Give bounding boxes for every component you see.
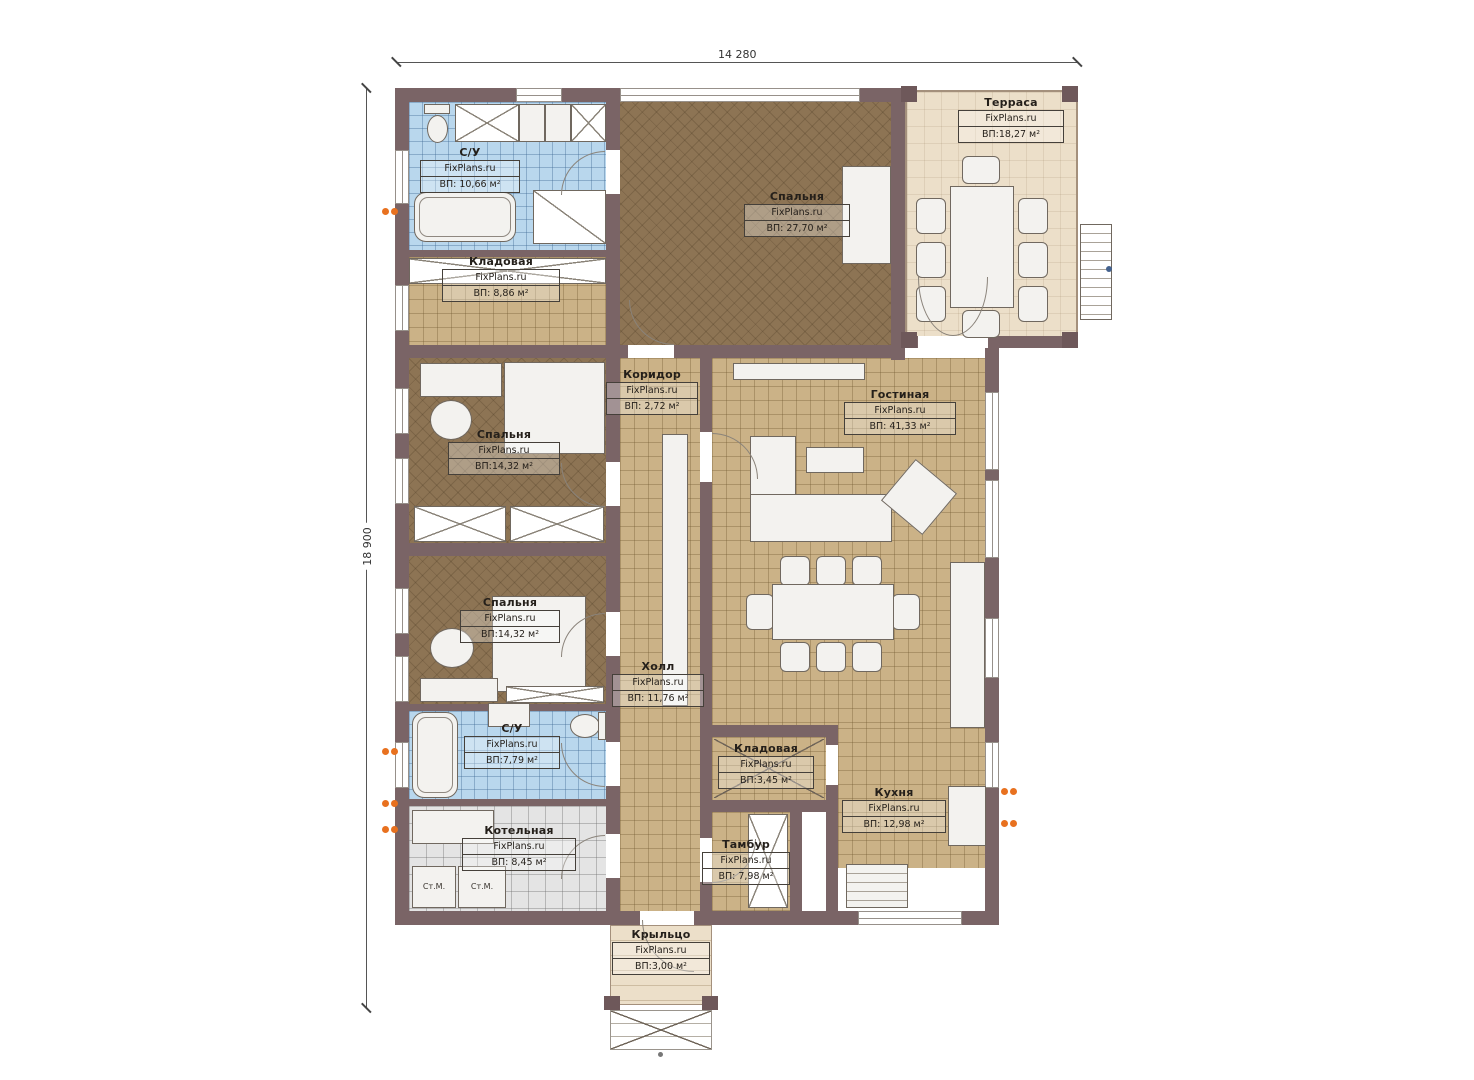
door-gap-bedroom-mid: [606, 462, 620, 506]
area-box: ВП: 10,66 м²: [420, 176, 520, 193]
radiator: [382, 748, 399, 756]
washing-machine: Ст.М.: [412, 866, 456, 908]
brand-box: FixPlans.ru: [442, 269, 560, 286]
window: [516, 88, 562, 102]
chair: [780, 556, 810, 586]
room-label-bedroom-low: Спальня FixPlans.ru ВП:14,32 м²: [460, 596, 560, 643]
dimension-line-top: [396, 62, 1078, 63]
window: [395, 588, 409, 634]
marker-dot: [658, 1052, 663, 1057]
toilet-tank: [424, 104, 450, 114]
window: [985, 392, 999, 470]
toilet-tank: [598, 712, 606, 740]
brand-box: FixPlans.ru: [844, 402, 956, 419]
chair: [746, 594, 774, 630]
brand-box: FixPlans.ru: [718, 756, 814, 773]
room-label-porch: Крыльцо FixPlans.ru ВП:3,00 м²: [612, 928, 710, 975]
area-box: ВП:14,32 м²: [460, 626, 560, 643]
chair: [1018, 286, 1048, 322]
chair: [962, 156, 1000, 184]
window: [620, 88, 860, 102]
terrace-post: [901, 86, 917, 102]
window: [985, 480, 999, 558]
room-label-tambur: Тамбур FixPlans.ru ВП: 7,98 м²: [702, 838, 790, 885]
brand-box: FixPlans.ru: [464, 736, 560, 753]
room-label-boiler: Котельная FixPlans.ru ВП: 8,45 м²: [462, 824, 576, 871]
window: [858, 911, 962, 925]
door-gap-bedroom-low: [606, 612, 620, 656]
shower: [533, 190, 606, 244]
brand-box: FixPlans.ru: [420, 160, 520, 177]
brand-box: FixPlans.ru: [448, 442, 560, 459]
area-box: ВП: 27,70 м²: [744, 220, 850, 237]
wardrobe: [455, 104, 519, 142]
chair: [892, 594, 920, 630]
room-name: Котельная: [462, 824, 576, 837]
room-label-living: Гостиная FixPlans.ru ВП: 41,33 м²: [844, 388, 956, 435]
chair: [1018, 198, 1048, 234]
area-box: ВП:3,45 м²: [718, 772, 814, 789]
terrace-post: [901, 332, 917, 348]
area-box: ВП: 41,33 м²: [844, 418, 956, 435]
terrace-post: [1062, 332, 1078, 348]
room-name: Спальня: [448, 428, 560, 441]
area-box: ВП:18,27 м²: [958, 126, 1064, 143]
room-name: Кладовая: [718, 742, 814, 755]
wall-center-vertical: [606, 102, 620, 911]
area-box: ВП: 7,98 м²: [702, 868, 790, 885]
area-box: ВП:7,79 м²: [464, 752, 560, 769]
desk: [420, 678, 498, 702]
cabinet: [545, 104, 571, 142]
room-label-bath-low: С/У FixPlans.ru ВП:7,79 м²: [464, 722, 560, 769]
room-name: Коридор: [606, 368, 698, 381]
porch-post: [702, 996, 718, 1010]
room-name: Крыльцо: [612, 928, 710, 941]
room-name: Терраса: [958, 96, 1064, 109]
radiator: [382, 800, 399, 808]
brand-box: FixPlans.ru: [612, 674, 704, 691]
radiator: [382, 208, 399, 216]
chair: [816, 556, 846, 586]
washer-label: Ст.М.: [459, 882, 505, 891]
room-label-storage-top: Кладовая FixPlans.ru ВП: 8,86 м²: [442, 255, 560, 302]
floor-plan-canvas: 14 280 18 900: [0, 0, 1474, 1080]
radiator: [1001, 788, 1018, 796]
room-name: Спальня: [460, 596, 560, 609]
room-name: Спальня: [744, 190, 850, 203]
kitchen-appliances: [948, 786, 986, 846]
room-label-terrace: Терраса FixPlans.ru ВП:18,27 м²: [958, 96, 1064, 143]
window: [985, 618, 999, 678]
room-name: Тамбур: [702, 838, 790, 851]
brand-box: FixPlans.ru: [460, 610, 560, 627]
bathtub: [414, 192, 516, 242]
door-gap-bath-top: [606, 150, 620, 194]
radiator: [382, 826, 399, 834]
room-label-corridor: Коридор FixPlans.ru ВП: 2,72 м²: [606, 368, 698, 415]
chair: [852, 556, 882, 586]
area-box: ВП: 12,98 м²: [842, 816, 946, 833]
cabinet: [519, 104, 545, 142]
tv-console: [733, 363, 865, 380]
brand-box: FixPlans.ru: [842, 800, 946, 817]
coffee-table: [806, 447, 864, 473]
step-lines: [611, 1011, 711, 1049]
room-label-bedroom-top: Спальня FixPlans.ru ВП: 27,70 м²: [744, 190, 850, 237]
sofa-seat: [750, 494, 892, 542]
wall-bedroom-right: [891, 88, 905, 360]
area-box: ВП: 8,86 м²: [442, 285, 560, 302]
chair: [852, 642, 882, 672]
wall-bedroom-divider: [409, 543, 606, 556]
area-box: ВП: 11,76 м²: [612, 690, 704, 707]
room-name: С/У: [420, 146, 520, 159]
window: [985, 742, 999, 788]
bathtub: [412, 712, 458, 798]
room-name: С/У: [464, 722, 560, 735]
floor-hall: [620, 358, 700, 911]
oven: [846, 864, 908, 908]
exterior-stair: [1080, 224, 1112, 320]
room-label-storage-low: Кладовая FixPlans.ru ВП:3,45 м²: [718, 742, 814, 789]
wardrobe: [571, 104, 606, 142]
window: [395, 150, 409, 204]
chair: [780, 642, 810, 672]
room-label-hall: Холл FixPlans.ru ВП: 11,76 м²: [612, 660, 704, 707]
wardrobe: [510, 506, 604, 542]
window: [395, 656, 409, 702]
wall-bath-boiler: [409, 799, 606, 806]
room-name: Холл: [612, 660, 704, 673]
room-label-bath-top: С/У FixPlans.ru ВП: 10,66 м²: [420, 146, 520, 193]
door-gap-bath-low: [606, 742, 620, 786]
room-label-kitchen: Кухня FixPlans.ru ВП: 12,98 м²: [842, 786, 946, 833]
window: [395, 458, 409, 504]
marker-dot: [1106, 266, 1112, 272]
brand-box: FixPlans.ru: [744, 204, 850, 221]
brand-box: FixPlans.ru: [606, 382, 698, 399]
window: [395, 285, 409, 331]
wardrobe: [414, 506, 506, 542]
area-box: ВП:14,32 м²: [448, 458, 560, 475]
wall-storagelow-top: [712, 725, 838, 737]
dimension-height-label: 18 900: [361, 523, 374, 570]
room-name: Кладовая: [442, 255, 560, 268]
chair: [916, 198, 946, 234]
room-label-bedroom-mid: Спальня FixPlans.ru ВП:14,32 м²: [448, 428, 560, 475]
chair: [1018, 242, 1048, 278]
dining-table: [772, 584, 894, 640]
area-box: ВП: 8,45 м²: [462, 854, 576, 871]
brand-box: FixPlans.ru: [612, 942, 710, 959]
desk: [420, 363, 502, 397]
area-box: ВП: 2,72 м²: [606, 398, 698, 415]
washing-machine: Ст.М.: [458, 866, 506, 908]
door-gap-storage-low: [826, 745, 838, 785]
toilet-bowl: [570, 714, 600, 738]
brand-box: FixPlans.ru: [462, 838, 576, 855]
kitchen-cabinet-strip: [950, 562, 985, 728]
terrace-post: [1062, 86, 1078, 102]
door-gap-bedroom-top: [628, 345, 674, 358]
porch-post: [604, 996, 620, 1010]
wall-storagelow-bottom: [712, 800, 838, 812]
toilet-bowl: [427, 115, 448, 143]
wall-kitchen-left: [826, 800, 838, 911]
room-name: Гостиная: [844, 388, 956, 401]
brand-box: FixPlans.ru: [702, 852, 790, 869]
wall-tambur-right: [790, 812, 802, 911]
wardrobe: [506, 686, 604, 703]
washer-label: Ст.М.: [413, 882, 455, 891]
room-name: Кухня: [842, 786, 946, 799]
area-box: ВП:3,00 м²: [612, 958, 710, 975]
chair: [916, 242, 946, 278]
dimension-width-label: 14 280: [714, 48, 761, 61]
chair: [816, 642, 846, 672]
door-gap-boiler: [606, 834, 620, 878]
porch-steps: [610, 1010, 712, 1050]
window: [395, 388, 409, 434]
door-gap-living: [700, 432, 712, 482]
brand-box: FixPlans.ru: [958, 110, 1064, 127]
radiator: [1001, 820, 1018, 828]
